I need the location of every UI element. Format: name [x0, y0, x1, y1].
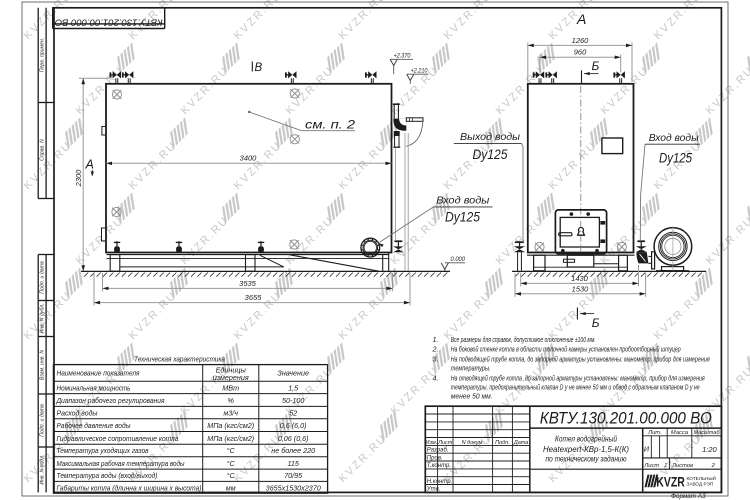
- svg-text:Лист: Лист: [437, 440, 453, 446]
- svg-text:Dy125: Dy125: [473, 146, 508, 162]
- svg-text:А: А: [576, 11, 586, 27]
- svg-text:Heatexpert-КВр-1,5-К(К): Heatexpert-КВр-1,5-К(К): [543, 444, 629, 454]
- svg-text:менее 50 мм.: менее 50 мм.: [451, 391, 493, 400]
- svg-text:Значение: Значение: [277, 369, 309, 378]
- svg-text:°С: °С: [227, 446, 236, 455]
- svg-text:Листов: Листов: [671, 463, 693, 469]
- svg-text:Перв. примен.: Перв. примен.: [40, 38, 46, 72]
- svg-text:52: 52: [289, 409, 297, 418]
- svg-text:Расход воды: Расход воды: [57, 409, 99, 418]
- svg-text:1430: 1430: [571, 274, 589, 283]
- svg-text:Выход воды: Выход воды: [460, 131, 520, 143]
- svg-text:115: 115: [287, 459, 299, 468]
- svg-text:Лист: Лист: [643, 463, 659, 469]
- svg-text:960: 960: [574, 48, 587, 57]
- svg-text:Подп. и дата: Подп. и дата: [40, 404, 46, 437]
- svg-text:Dy125: Dy125: [659, 149, 692, 165]
- svg-text:Изм.: Изм.: [426, 440, 438, 446]
- svg-text:Н.контр.: Н.контр.: [427, 479, 452, 485]
- svg-text:Техническая характеристика: Техническая характеристика: [134, 354, 225, 363]
- svg-text:МВт: МВт: [222, 383, 239, 392]
- svg-text:Подп.: Подп.: [495, 440, 510, 446]
- svg-text:Рабочее давление воды: Рабочее давление воды: [57, 421, 132, 430]
- svg-text:50-100: 50-100: [282, 396, 304, 405]
- svg-text:Масштаб: Масштаб: [694, 430, 721, 436]
- svg-text:1.: 1.: [433, 335, 439, 344]
- svg-text:м3/ч: м3/ч: [223, 409, 238, 418]
- svg-text:4.: 4.: [433, 374, 439, 383]
- svg-text:3655: 3655: [245, 293, 263, 302]
- svg-text:Наименование показателя: Наименование показателя: [57, 369, 140, 378]
- svg-text:70/95: 70/95: [284, 471, 303, 480]
- svg-text:КОТЕЛЬНЫЙ: КОТЕЛЬНЫЙ: [687, 474, 716, 481]
- svg-text:KVZR: KVZR: [656, 474, 685, 489]
- svg-text:3535: 3535: [239, 279, 257, 288]
- svg-text:Разраб.: Разраб.: [427, 448, 449, 454]
- svg-text:температуры.: температуры.: [451, 364, 491, 373]
- svg-text:Лит.: Лит.: [647, 430, 662, 436]
- svg-text:Утв.: Утв.: [426, 487, 441, 493]
- svg-text:мм: мм: [226, 483, 236, 492]
- svg-text:1530: 1530: [572, 284, 590, 293]
- svg-text:И: И: [644, 445, 650, 454]
- svg-text:Пров.: Пров.: [427, 455, 443, 461]
- svg-text:Справ. N: Справ. N: [40, 139, 46, 161]
- svg-text:А: А: [85, 158, 94, 172]
- svg-text:температуры, предохранительный: температуры, предохранительный клапан D …: [451, 383, 700, 392]
- svg-text:Инв. N дубл.: Инв. N дубл.: [40, 303, 46, 333]
- svg-text:КВТУ.130.201.00.000 ВО: КВТУ.130.201.00.000 ВО: [540, 409, 712, 428]
- svg-text:Dy125: Dy125: [445, 209, 480, 225]
- svg-text:На подводящей трубе котла, д: На подводящей трубе котла, до запорной а…: [451, 355, 710, 364]
- svg-text:1,5: 1,5: [288, 383, 299, 392]
- svg-text:Максимальная рабочая температу: Максимальная рабочая температура воды: [57, 459, 186, 468]
- svg-text:Габариты котла (длинна х ширин: Габариты котла (длинна х ширина х высота…: [57, 483, 202, 492]
- svg-text:0.000: 0.000: [451, 256, 466, 263]
- svg-text:Вход воды: Вход воды: [436, 194, 489, 206]
- svg-text:Все размеры для справок, допус: Все размеры для справок, допустимое откл…: [451, 335, 596, 344]
- svg-text:°С: °С: [227, 471, 236, 480]
- svg-text:°С: °С: [227, 459, 236, 468]
- svg-text:3655х1530х2370: 3655х1530х2370: [266, 483, 321, 492]
- svg-text:3.: 3.: [433, 355, 439, 364]
- svg-text:Инв. N подл.: Инв. N подл.: [40, 454, 46, 484]
- svg-text:Б: Б: [592, 59, 600, 73]
- svg-text:Температура воды (вход/выход): Температура воды (вход/выход): [57, 471, 158, 480]
- svg-text:Гидравлическое сопротивление к: Гидравлическое сопротивление котла: [57, 434, 179, 443]
- svg-text:Взам. инв. N: Взам. инв. N: [40, 350, 46, 380]
- svg-text:На боковой стенке котла в обла: На боковой стенке котла в области топочн…: [451, 345, 681, 354]
- svg-text:1: 1: [664, 463, 667, 469]
- svg-text:Котел водогрейный: Котел водогрейный: [555, 434, 617, 444]
- svg-text:3400: 3400: [240, 154, 258, 163]
- svg-text:Масса: Масса: [671, 430, 689, 436]
- svg-text:В: В: [255, 62, 263, 74]
- svg-text:N докум.: N докум.: [462, 440, 484, 446]
- svg-text:0,06 (0,6): 0,06 (0,6): [278, 434, 309, 443]
- svg-text:измерения: измерения: [213, 373, 249, 382]
- svg-text:%: %: [227, 396, 234, 405]
- svg-text:2.: 2.: [432, 345, 439, 354]
- svg-text:ЗАВОД РЭП: ЗАВОД РЭП: [687, 481, 714, 486]
- svg-text:МПа (кгс/см2): МПа (кгс/см2): [207, 434, 254, 443]
- svg-text:Номинальная мощность: Номинальная мощность: [57, 383, 131, 392]
- svg-text:Диапазон рабочего регулировани: Диапазон рабочего регулирования: [56, 396, 165, 405]
- svg-text:Вход воды: Вход воды: [649, 132, 699, 144]
- svg-text:МПа (кгс/см2): МПа (кгс/см2): [207, 421, 254, 430]
- svg-text:не более 220: не более 220: [271, 446, 315, 455]
- svg-text:Б: Б: [592, 316, 600, 330]
- svg-text:0,6 (6,0): 0,6 (6,0): [280, 421, 307, 430]
- svg-text:+2.210: +2.210: [411, 67, 428, 74]
- svg-text:На отводящей трубе котла ,до з: На отводящей трубе котла ,до запорной ар…: [451, 374, 705, 383]
- svg-text:Формат А3: Формат А3: [671, 493, 706, 500]
- svg-text:2300: 2300: [74, 169, 83, 188]
- svg-text:Подп. и дата: Подп. и дата: [40, 261, 46, 294]
- svg-text:Т.контр.: Т.контр.: [427, 463, 451, 469]
- svg-text:Температура уходящих газов: Температура уходящих газов: [57, 446, 149, 455]
- svg-text:по техническому заданию: по техническому заданию: [546, 454, 627, 464]
- svg-text:Дата: Дата: [513, 440, 529, 446]
- svg-text:1260: 1260: [572, 36, 590, 45]
- svg-text:1:20: 1:20: [702, 445, 717, 454]
- svg-text:см. п. 2: см. п. 2: [305, 120, 356, 132]
- svg-text:КВТУ.130.201.00.000 ВО: КВТУ.130.201.00.000 ВО: [55, 17, 163, 27]
- svg-text:+2.370: +2.370: [394, 53, 411, 60]
- svg-text:2: 2: [711, 463, 716, 469]
